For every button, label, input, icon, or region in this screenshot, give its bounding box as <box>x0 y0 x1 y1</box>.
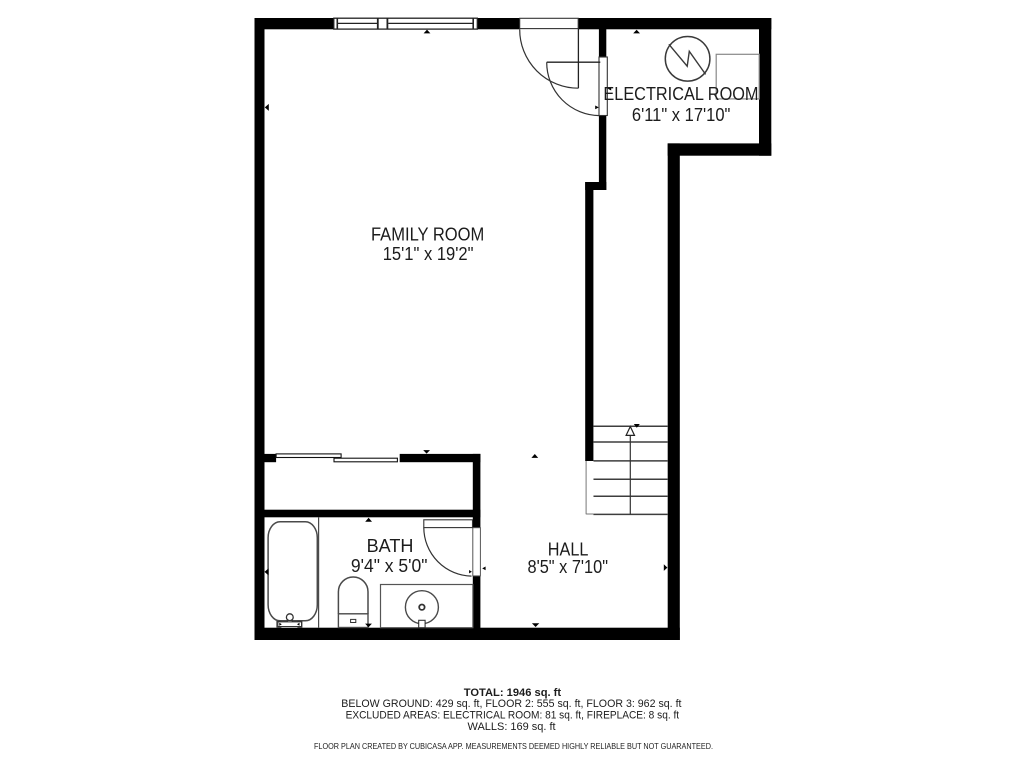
svg-text:EXCLUDED AREAS: ELECTRICAL ROO: EXCLUDED AREAS: ELECTRICAL ROOM: 81 sq. … <box>346 710 680 722</box>
svg-text:FAMILY ROOM: FAMILY ROOM <box>371 224 484 244</box>
svg-text:BATH: BATH <box>367 536 414 556</box>
svg-text:WALLS: 169 sq. ft: WALLS: 169 sq. ft <box>468 721 556 733</box>
svg-text:8'5" x 7'10": 8'5" x 7'10" <box>528 557 609 577</box>
svg-text:6'11" x 17'10": 6'11" x 17'10" <box>632 105 731 125</box>
svg-text:ELECTRICAL ROOM: ELECTRICAL ROOM <box>603 84 758 104</box>
svg-text:FLOOR PLAN CREATED BY CUBICASA: FLOOR PLAN CREATED BY CUBICASA APP. MEAS… <box>314 742 713 751</box>
svg-text:9'4" x 5'0": 9'4" x 5'0" <box>351 556 428 576</box>
svg-text:BELOW GROUND: 429 sq. ft, FLOO: BELOW GROUND: 429 sq. ft, FLOOR 2: 555 s… <box>341 698 681 710</box>
svg-text:15'1" x 19'2": 15'1" x 19'2" <box>383 244 474 264</box>
